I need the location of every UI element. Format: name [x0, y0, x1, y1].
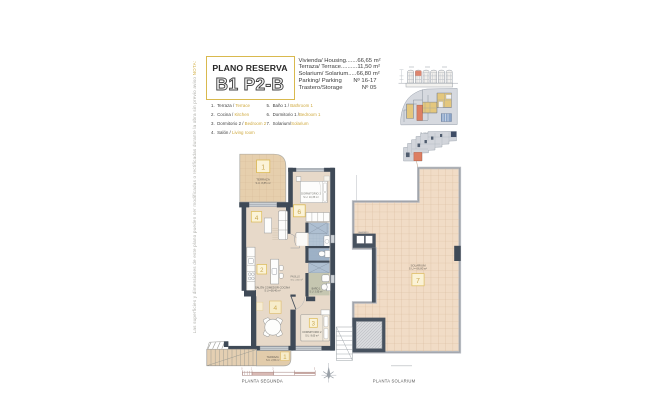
svg-text:S.U. 2,65 m²: S.U. 2,65 m² — [266, 359, 280, 362]
svg-text:S.U. 10,35 m²: S.U. 10,35 m² — [303, 196, 319, 199]
svg-text:4: 4 — [255, 215, 259, 222]
svg-text:6: 6 — [297, 209, 301, 216]
svg-text:1: 1 — [261, 164, 265, 171]
svg-text:PLANTA SOLARIUM: PLANTA SOLARIUM — [373, 378, 416, 383]
svg-text:S.U. 3,95 m²: S.U. 3,95 m² — [310, 290, 323, 293]
svg-text:S.U. 8,85 m²: S.U. 8,85 m² — [255, 181, 270, 185]
svg-text:S.U.= 66,80 m²: S.U.= 66,80 m² — [409, 267, 427, 271]
svg-text:7: 7 — [416, 278, 420, 285]
svg-text:LAVADERO: LAVADERO — [358, 231, 369, 234]
svg-text:S.U.=38,40 m²: S.U.=38,40 m² — [264, 290, 280, 293]
svg-text:3: 3 — [272, 369, 274, 371]
svg-text:4: 4 — [273, 305, 277, 312]
svg-text:S.U. 2,60 m²: S.U. 2,60 m² — [291, 278, 304, 281]
svg-text:TERRAZA: TERRAZA — [256, 178, 270, 182]
svg-text:PLANTA SEGUNDA: PLANTA SEGUNDA — [242, 378, 283, 383]
svg-text:1: 1 — [251, 369, 253, 371]
svg-text:S.U. 8,60 m²: S.U. 8,60 m² — [305, 334, 319, 337]
svg-text:5: 5 — [314, 369, 316, 371]
svg-text:BAÑO 1: BAÑO 1 — [312, 288, 321, 291]
svg-text:0: 0 — [241, 369, 243, 371]
svg-text:PASILLO: PASILLO — [291, 276, 301, 279]
